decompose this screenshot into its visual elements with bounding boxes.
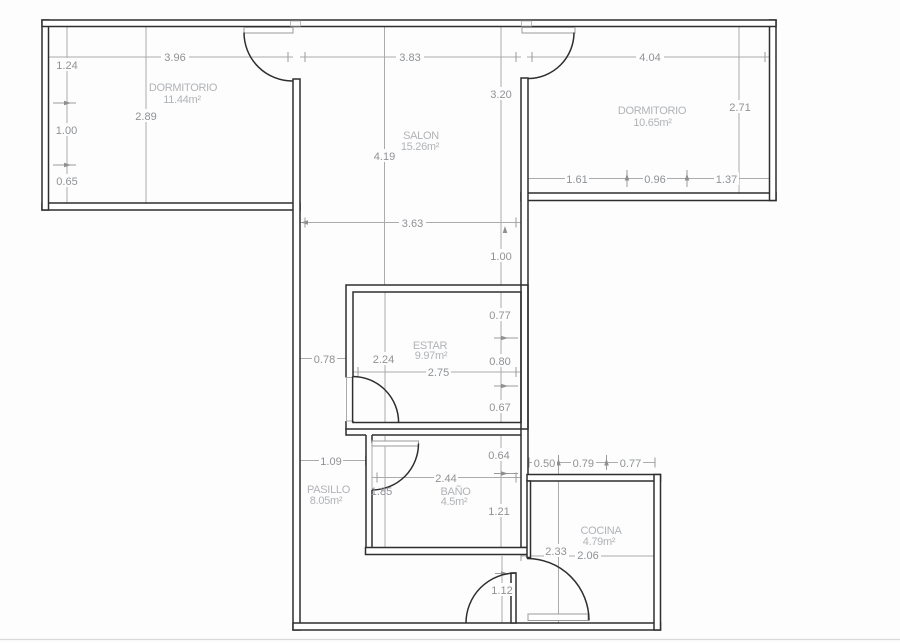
svg-text:1.00: 1.00 — [490, 251, 511, 263]
svg-text:2.24: 2.24 — [373, 354, 394, 366]
svg-text:3.63: 3.63 — [402, 218, 423, 230]
svg-text:3.20: 3.20 — [490, 89, 511, 101]
svg-text:1.09: 1.09 — [320, 456, 341, 468]
svg-text:2.06: 2.06 — [577, 550, 598, 562]
svg-text:1.24: 1.24 — [56, 60, 77, 72]
svg-text:2.44: 2.44 — [435, 473, 456, 485]
svg-text:0.79: 0.79 — [573, 458, 594, 470]
svg-text:1.61: 1.61 — [566, 174, 587, 186]
svg-text:15.26m²: 15.26m² — [401, 141, 440, 153]
svg-text:0.65: 0.65 — [56, 176, 77, 188]
svg-text:DORMITORIO: DORMITORIO — [618, 105, 687, 117]
svg-text:4.5m²: 4.5m² — [441, 496, 468, 508]
svg-text:2.33: 2.33 — [545, 546, 566, 558]
svg-text:4.79m²: 4.79m² — [583, 536, 616, 548]
svg-text:8.05m²: 8.05m² — [310, 495, 343, 507]
svg-text:0.96: 0.96 — [644, 174, 665, 186]
svg-text:0.78: 0.78 — [314, 354, 335, 366]
svg-text:1.37: 1.37 — [716, 174, 737, 186]
svg-text:DORMITORIO: DORMITORIO — [149, 82, 218, 94]
svg-text:11.44m²: 11.44m² — [163, 94, 201, 106]
svg-text:0.64: 0.64 — [488, 450, 509, 462]
svg-text:2.71: 2.71 — [729, 102, 750, 114]
svg-text:1.85: 1.85 — [371, 486, 392, 498]
svg-text:1.21: 1.21 — [488, 506, 509, 518]
svg-text:2.89: 2.89 — [135, 111, 156, 123]
svg-text:0.77: 0.77 — [489, 310, 510, 322]
svg-text:0.77: 0.77 — [620, 458, 641, 470]
svg-text:3.83: 3.83 — [399, 52, 420, 64]
svg-text:4.19: 4.19 — [374, 151, 395, 163]
svg-text:0.67: 0.67 — [489, 402, 510, 414]
svg-text:1.12: 1.12 — [491, 585, 512, 597]
svg-text:3.96: 3.96 — [164, 52, 185, 64]
svg-text:0.50: 0.50 — [534, 458, 555, 470]
svg-text:10.65m²: 10.65m² — [633, 117, 672, 129]
svg-text:0.80: 0.80 — [489, 356, 510, 368]
svg-text:4.04: 4.04 — [639, 52, 660, 64]
svg-text:1.00: 1.00 — [56, 125, 77, 137]
svg-text:9.97m²: 9.97m² — [415, 350, 448, 362]
svg-text:2.75: 2.75 — [428, 367, 449, 379]
